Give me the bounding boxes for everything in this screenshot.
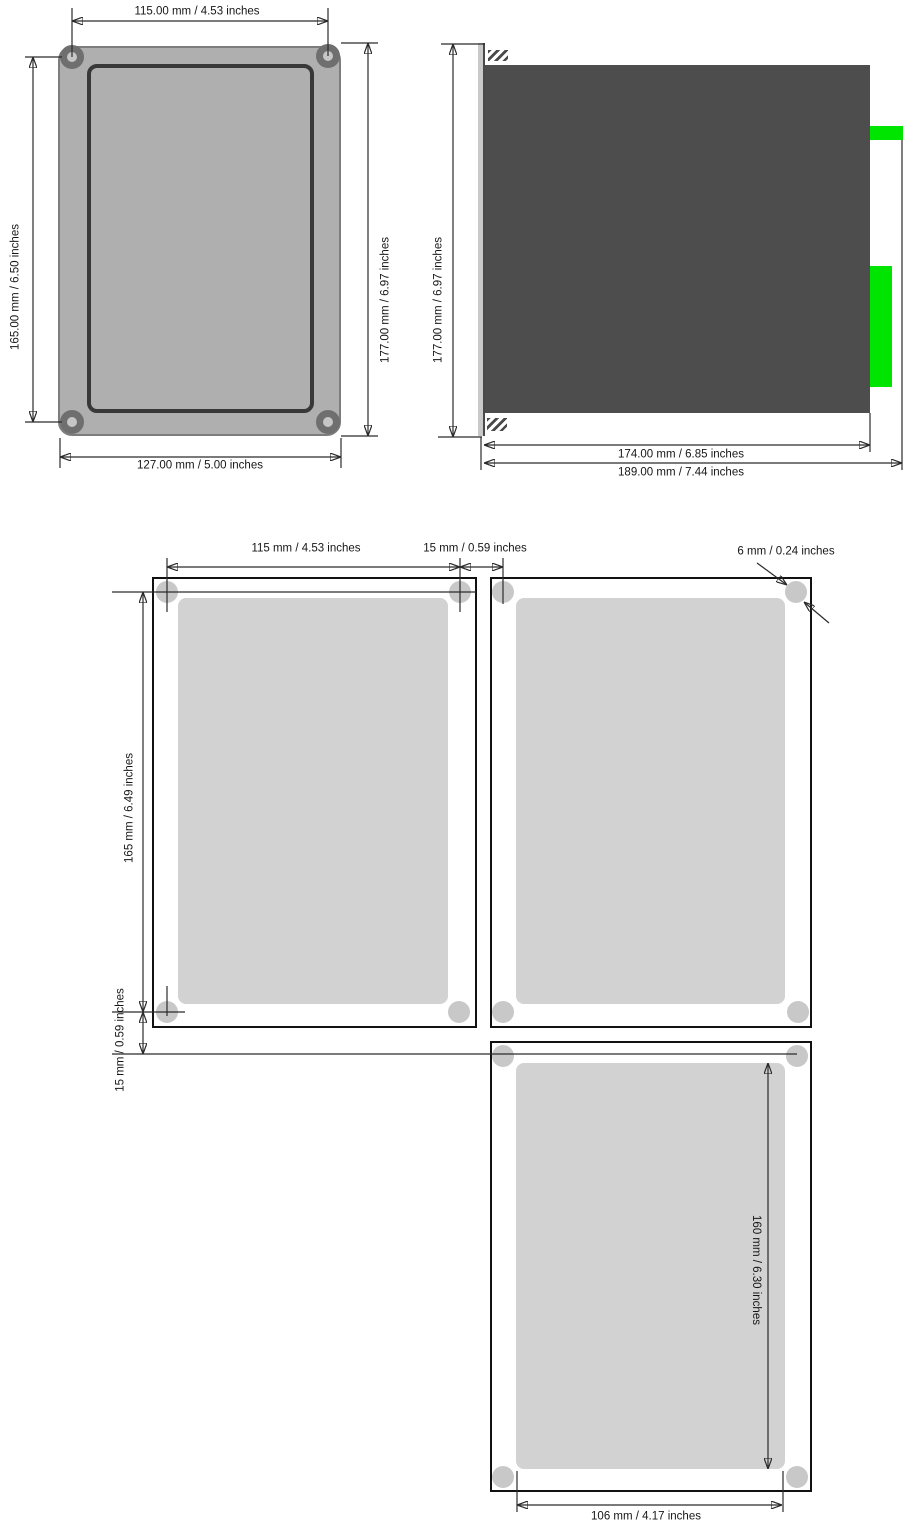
panel2-hole-top-right: [785, 581, 807, 603]
panel1-hole-bottom-right: [448, 1001, 470, 1023]
cutout-opening-2: [516, 598, 785, 1004]
dim-label-hole-diameter: 6 mm / 0.24 inches: [737, 546, 834, 558]
dim-label-cutout-width: 115 mm / 4.53 inches: [251, 543, 360, 555]
panel2-hole-bottom-left: [492, 1001, 514, 1023]
panel3-hole-bottom-right: [786, 1466, 808, 1488]
front-screw-hole-bottom-right: [316, 410, 340, 434]
dim-label-cutout-height: 165 mm / 6.49 inches: [124, 753, 136, 863]
dim-label-gap-horizontal: 15 mm / 0.59 inches: [423, 543, 527, 555]
dim-label-gap-vertical: 15 mm / 0.59 inches: [115, 988, 127, 1092]
side-enclosure-body: [485, 65, 870, 413]
panel3-hole-bottom-left: [492, 1466, 514, 1488]
cutout-opening-1: [178, 598, 448, 1004]
dim-label-inner-width: 106 mm / 4.17 inches: [591, 1511, 701, 1523]
dim-label-side-depth-total: 189.00 mm / 7.44 inches: [618, 467, 744, 479]
dim-label-front-width-total: 127.00 mm / 5.00 inches: [137, 460, 263, 472]
rear-connector-large: [870, 266, 892, 387]
dim-label-front-height-holes: 165.00 mm / 6.50 inches: [10, 224, 22, 350]
dim-label-inner-height: 160 mm / 6.30 inches: [749, 1215, 761, 1325]
mounting-panel-hatch-top: [488, 50, 508, 61]
panel1-hole-bottom-left: [156, 1001, 178, 1023]
dim-label-front-height-total: 177.00 mm / 6.97 inches: [380, 237, 392, 363]
dimension-drawing-canvas: 115.00 mm / 4.53 inches 165.00 mm / 6.50…: [0, 0, 922, 1536]
panel1-hole-top-left: [156, 581, 178, 603]
rear-connector-small: [870, 126, 903, 140]
front-screw-hole-top-left: [60, 45, 84, 69]
mounting-panel-hatch-bottom: [487, 418, 507, 431]
dim-label-front-width-holes: 115.00 mm / 4.53 inches: [134, 6, 259, 18]
panel2-hole-top-left: [492, 581, 514, 603]
side-front-panel-flange: [478, 43, 485, 436]
panel3-hole-top-left: [492, 1045, 514, 1067]
front-screw-hole-top-right: [316, 44, 340, 68]
panel1-hole-top-right: [449, 581, 471, 603]
enclosure-front-screen: [87, 64, 314, 413]
cutout-opening-3: [516, 1063, 785, 1469]
panel2-hole-bottom-right: [787, 1001, 809, 1023]
dim-label-side-depth-body: 174.00 mm / 6.85 inches: [618, 449, 744, 461]
dim-label-side-height: 177.00 mm / 6.97 inches: [433, 237, 445, 363]
panel3-hole-top-right: [786, 1045, 808, 1067]
front-screw-hole-bottom-left: [60, 410, 84, 434]
